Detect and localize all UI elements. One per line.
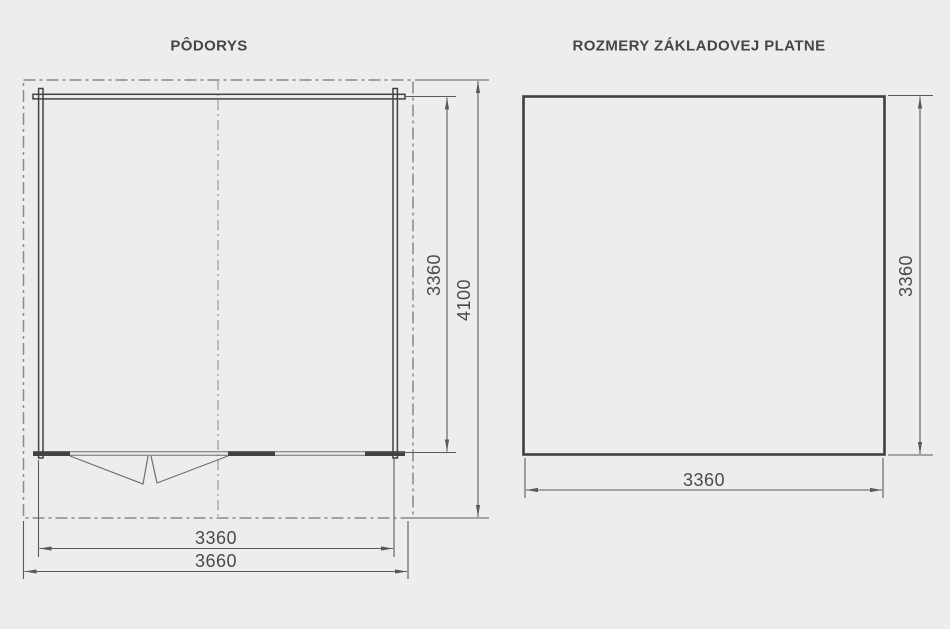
wall-right [393, 89, 397, 459]
dim-label-plate-width: 3360 [683, 471, 725, 489]
base-plate-drawing [524, 96, 934, 499]
wall-bottom-segment-middle [228, 451, 275, 456]
wall-top-beam [33, 94, 405, 99]
base-plate-outline [524, 97, 885, 455]
dim-label-outer-height: 4100 [455, 279, 473, 321]
door-leaf-right [151, 456, 228, 483]
dim-label-inner-width: 3360 [195, 529, 237, 547]
dim-label-plate-height: 3360 [897, 255, 915, 297]
dim-label-outer-width: 3660 [195, 552, 237, 570]
walls [33, 89, 405, 459]
wall-bottom-segment-left [33, 451, 70, 456]
technical-drawing-sheet: PÔDORYS ROZMERY ZÁKLADOVEJ PLATNE [0, 0, 950, 629]
wall-bottom-segment-right [365, 451, 405, 456]
door-leaf-left [70, 456, 148, 484]
double-door-swing [70, 456, 228, 484]
dim-label-inner-height: 3360 [425, 254, 443, 296]
wall-bottom [33, 451, 405, 456]
floor-plan-drawing [24, 80, 490, 579]
wall-left [39, 89, 43, 459]
base-plate-dimensions [525, 96, 933, 499]
floor-plan-dimensions [24, 80, 490, 579]
drawing-linework [0, 0, 950, 629]
